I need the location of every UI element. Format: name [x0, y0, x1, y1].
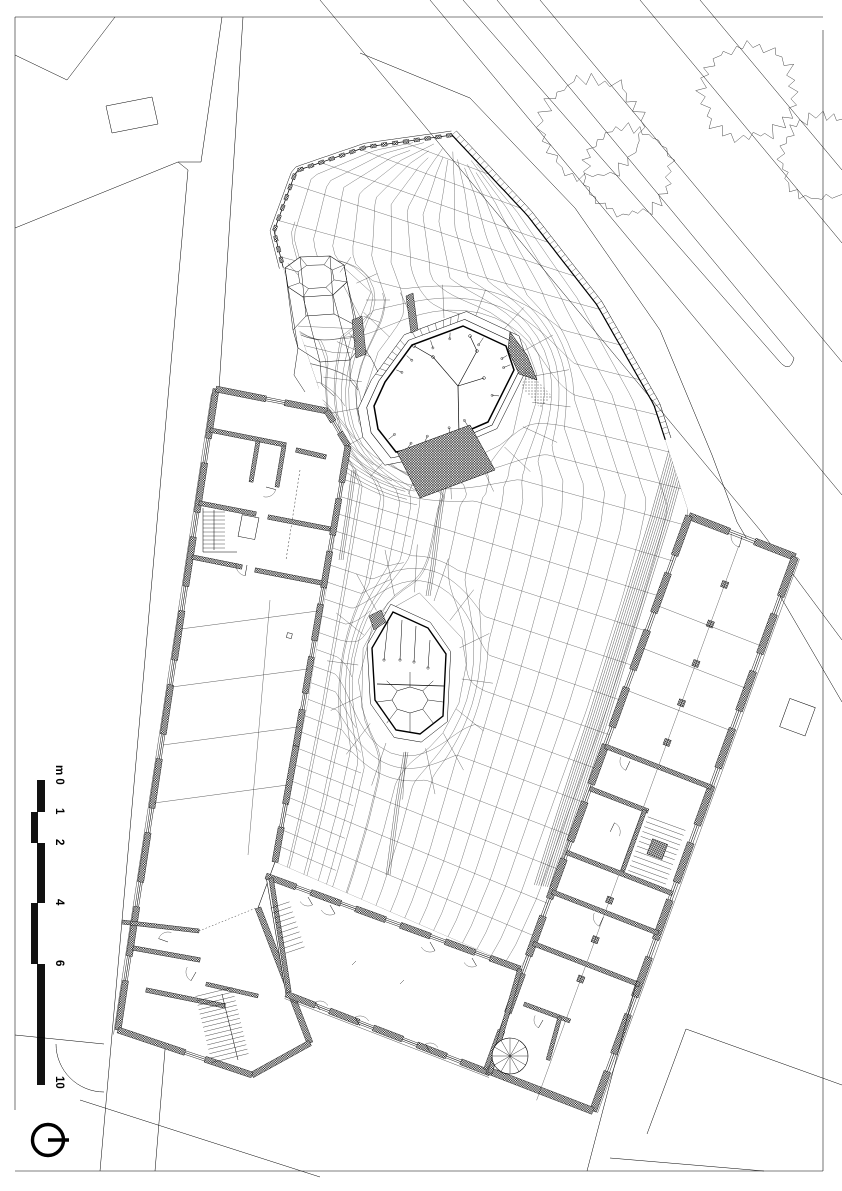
svg-text:2: 2 [53, 839, 65, 845]
svg-text:m 0: m 0 [53, 765, 65, 785]
svg-text:1: 1 [53, 808, 65, 815]
svg-text:4: 4 [53, 899, 65, 906]
svg-text:10: 10 [53, 1076, 65, 1089]
svg-text:6: 6 [53, 960, 65, 966]
